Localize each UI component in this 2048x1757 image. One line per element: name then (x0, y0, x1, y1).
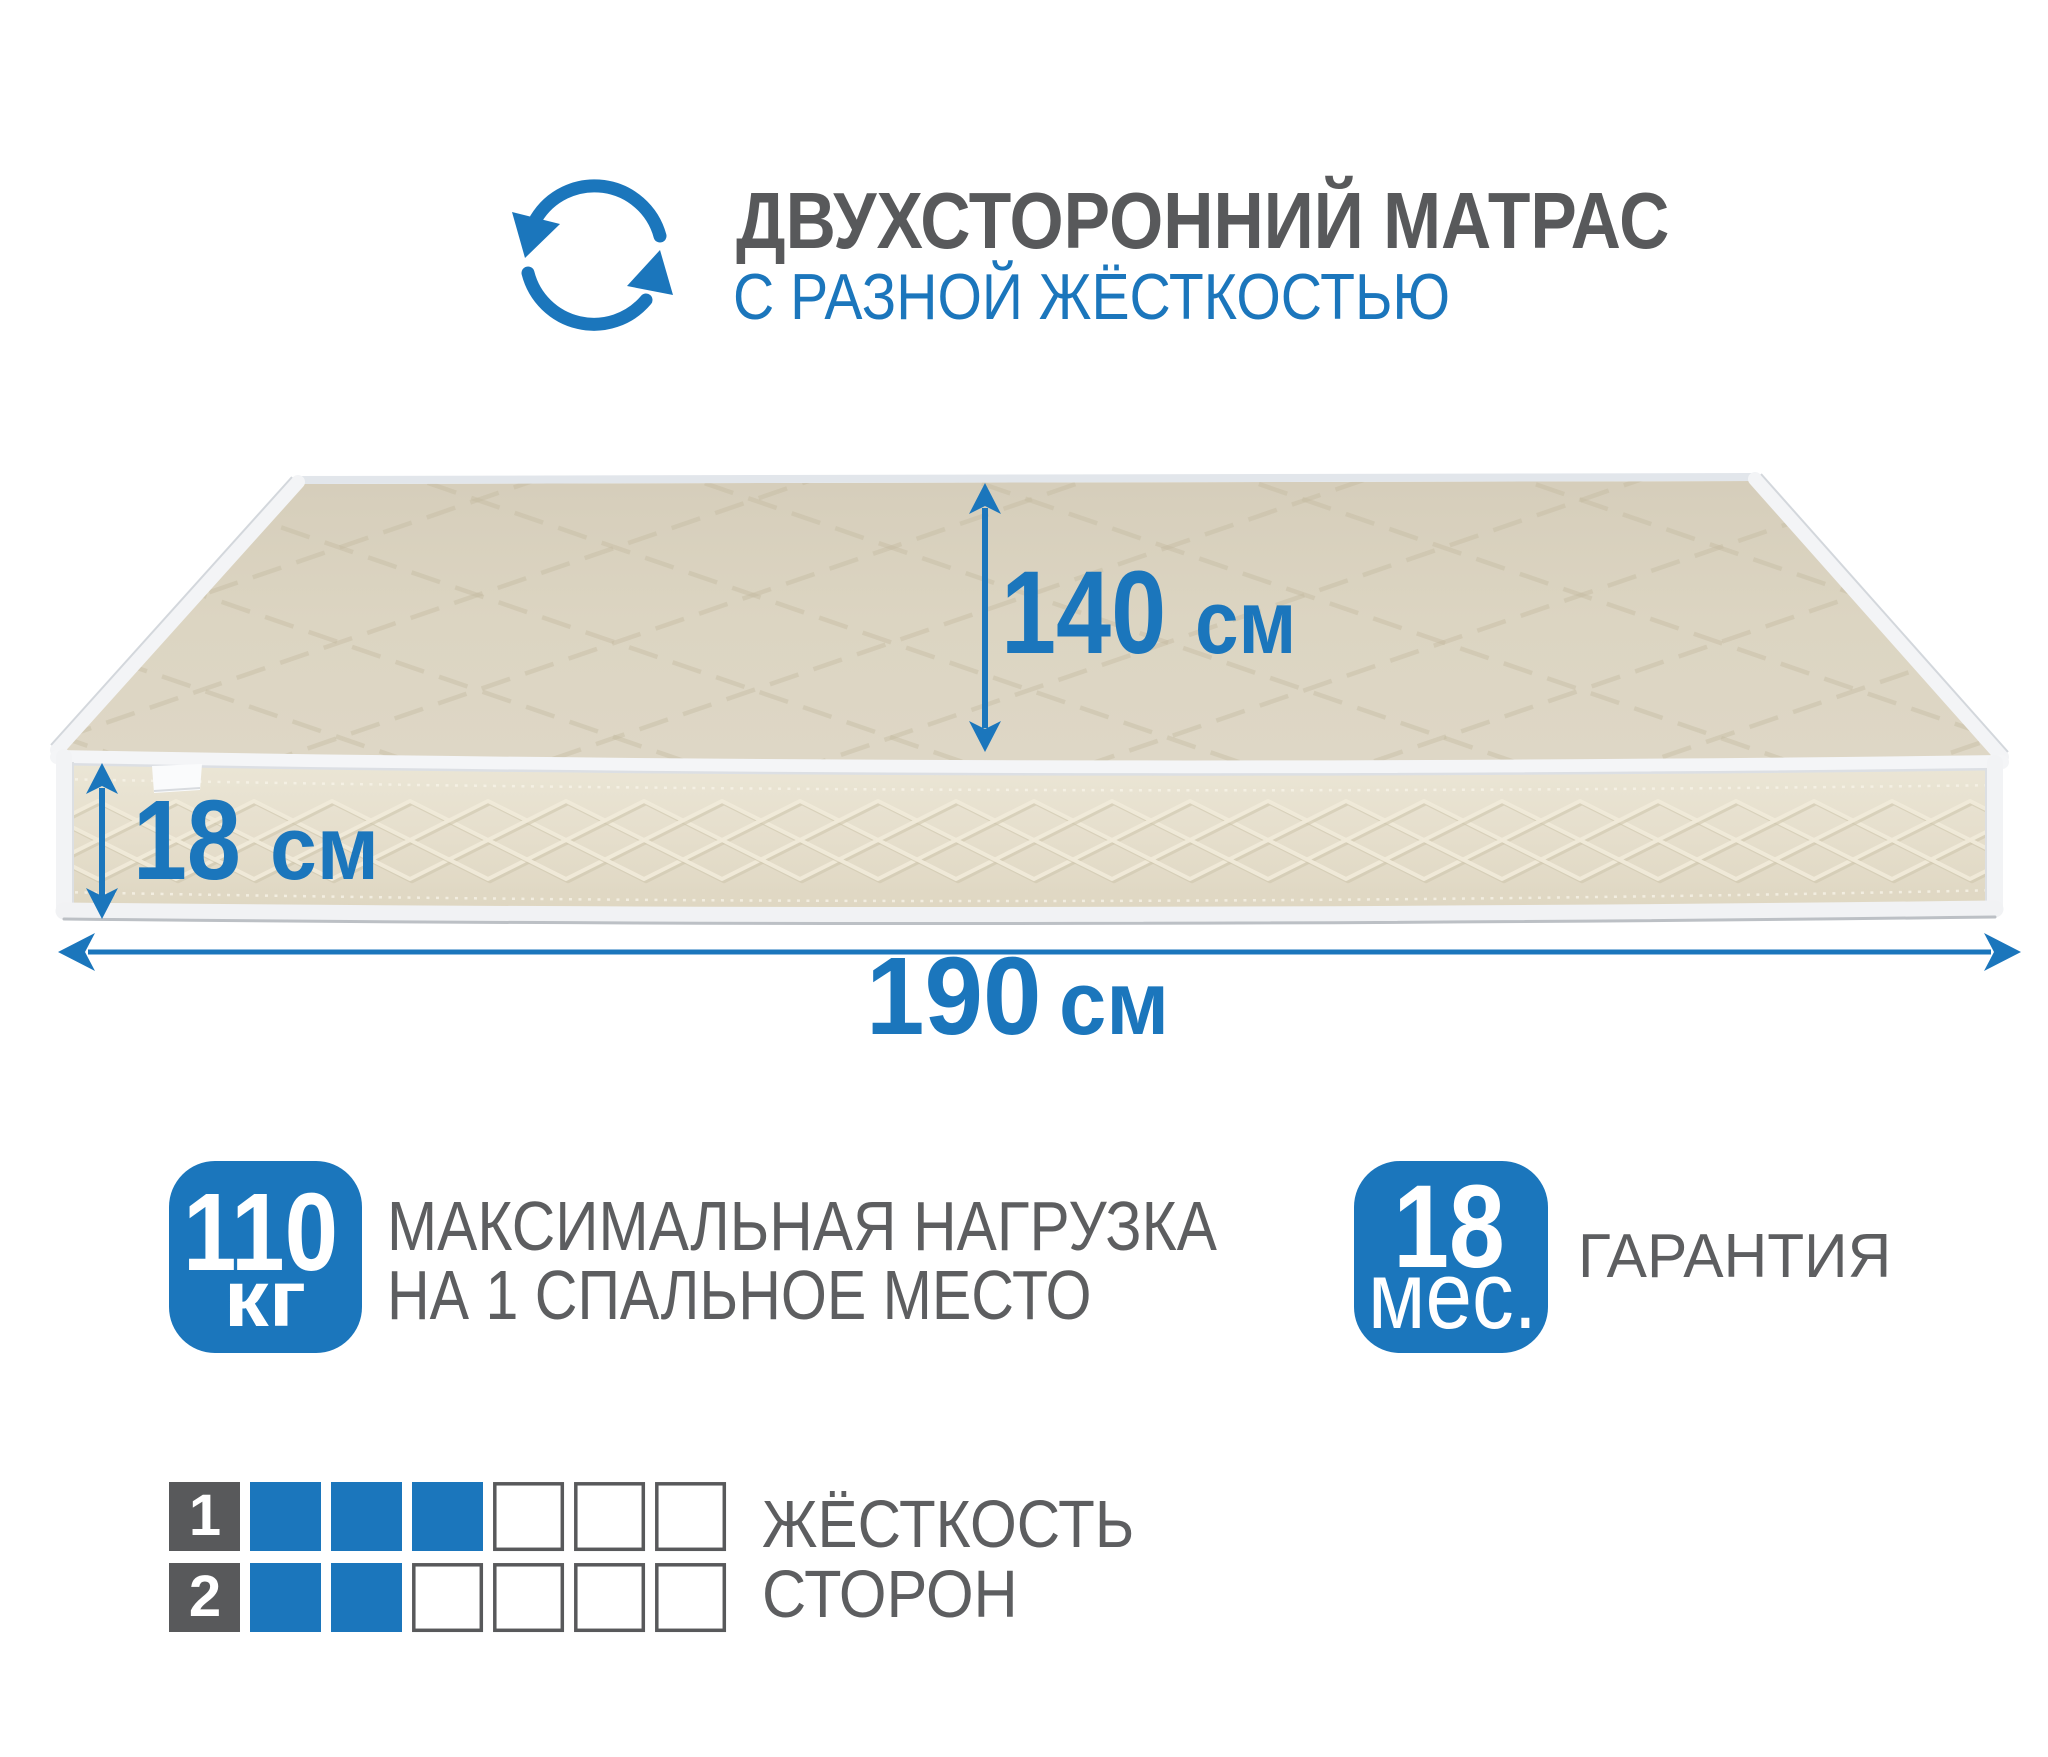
svg-text:ДВУХСТОРОННИЙ МАТРАС: ДВУХСТОРОННИЙ МАТРАС (736, 175, 1669, 265)
svg-text:18: 18 (133, 778, 241, 904)
svg-text:НА 1 СПАЛЬНОЕ МЕСТО: НА 1 СПАЛЬНОЕ МЕСТО (387, 1255, 1091, 1334)
svg-text:1: 1 (189, 1483, 221, 1548)
svg-text:см: см (1195, 572, 1296, 672)
svg-text:мес.: мес. (1368, 1243, 1537, 1350)
svg-text:ЖЁСТКОСТЬ: ЖЁСТКОСТЬ (762, 1487, 1134, 1562)
svg-text:С РАЗНОЙ ЖЁСТКОСТЬЮ: С РАЗНОЙ ЖЁСТКОСТЬЮ (733, 260, 1450, 333)
svg-text:ГАРАНТИЯ: ГАРАНТИЯ (1578, 1221, 1891, 1290)
svg-text:см: см (270, 798, 379, 898)
svg-text:140: 140 (1001, 547, 1166, 679)
svg-text:см: см (1059, 953, 1169, 1054)
svg-text:СТОРОН: СТОРОН (762, 1556, 1018, 1631)
svg-text:кг: кг (224, 1255, 307, 1344)
svg-text:2: 2 (189, 1564, 221, 1629)
svg-text:МАКСИМАЛЬНАЯ НАГРУЗКА: МАКСИМАЛЬНАЯ НАГРУЗКА (387, 1187, 1217, 1265)
svg-text:190: 190 (866, 935, 1041, 1058)
